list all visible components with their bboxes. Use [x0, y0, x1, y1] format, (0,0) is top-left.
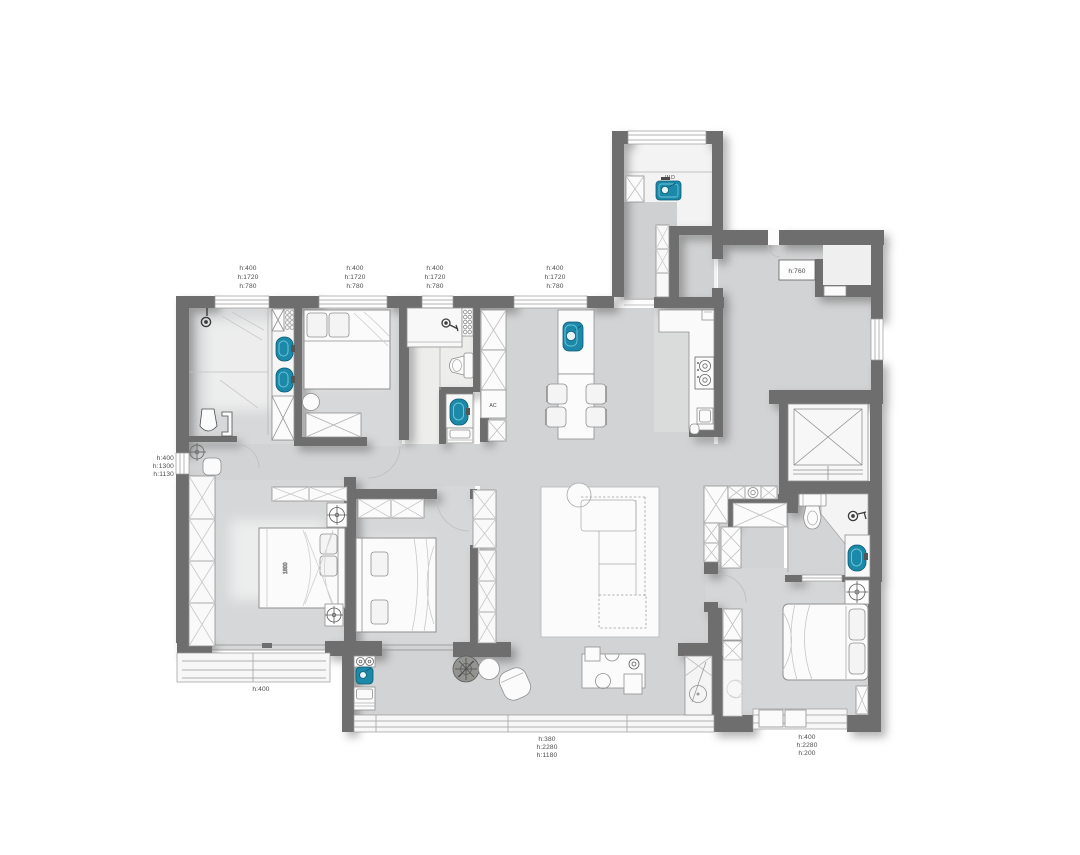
svg-text:h:1130: h:1130 [153, 471, 174, 478]
svg-text:h:400: h:400 [426, 265, 443, 272]
svg-text:h:2280: h:2280 [796, 742, 817, 749]
svg-text:h:1300: h:1300 [153, 463, 174, 470]
svg-text:h:780: h:780 [546, 283, 563, 290]
svg-text:h:400: h:400 [252, 686, 269, 693]
svg-text:h:780: h:780 [346, 283, 363, 290]
svg-text:h:2280: h:2280 [536, 744, 557, 751]
svg-text:h:780: h:780 [426, 283, 443, 290]
svg-text:1800: 1800 [283, 562, 289, 574]
svg-text:h:400: h:400 [157, 455, 174, 462]
svg-text:h:200: h:200 [798, 750, 815, 757]
svg-text:h:1720: h:1720 [424, 274, 445, 281]
svg-text:h:400: h:400 [798, 734, 815, 741]
svg-text:h:400: h:400 [346, 265, 363, 272]
svg-text:h:380: h:380 [538, 736, 555, 743]
svg-text:h:1720: h:1720 [344, 274, 365, 281]
svg-text:h:400: h:400 [546, 265, 563, 272]
svg-text:h:400: h:400 [239, 265, 256, 272]
svg-text:h:760: h:760 [788, 268, 805, 275]
svg-text:h:1720: h:1720 [237, 274, 258, 281]
svg-text:h:780: h:780 [239, 283, 256, 290]
svg-text:h:1180: h:1180 [537, 752, 558, 759]
svg-text:h:1720: h:1720 [544, 274, 565, 281]
svg-text:AC: AC [489, 403, 496, 409]
svg-text:W.D: W.D [665, 175, 675, 181]
